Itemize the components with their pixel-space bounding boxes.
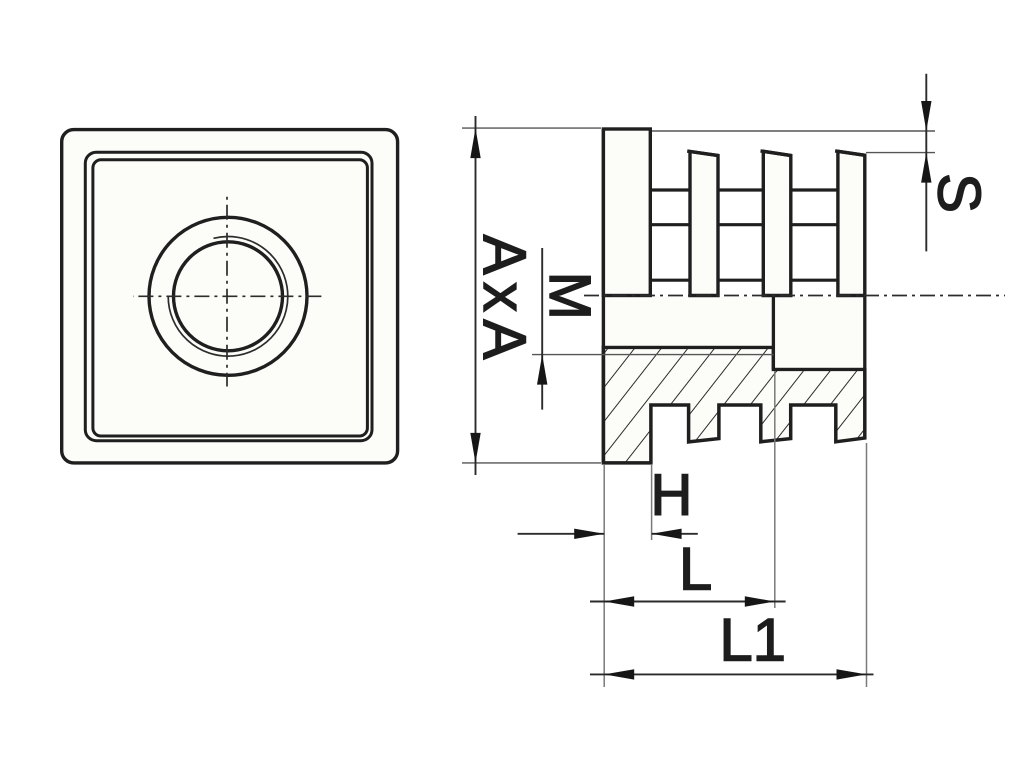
- svg-text:A x A: A x A: [471, 235, 538, 360]
- svg-text:L1: L1: [719, 607, 786, 674]
- svg-text:S: S: [926, 173, 993, 213]
- svg-text:L: L: [679, 536, 712, 603]
- svg-text:H: H: [650, 463, 692, 528]
- svg-text:M: M: [537, 272, 602, 320]
